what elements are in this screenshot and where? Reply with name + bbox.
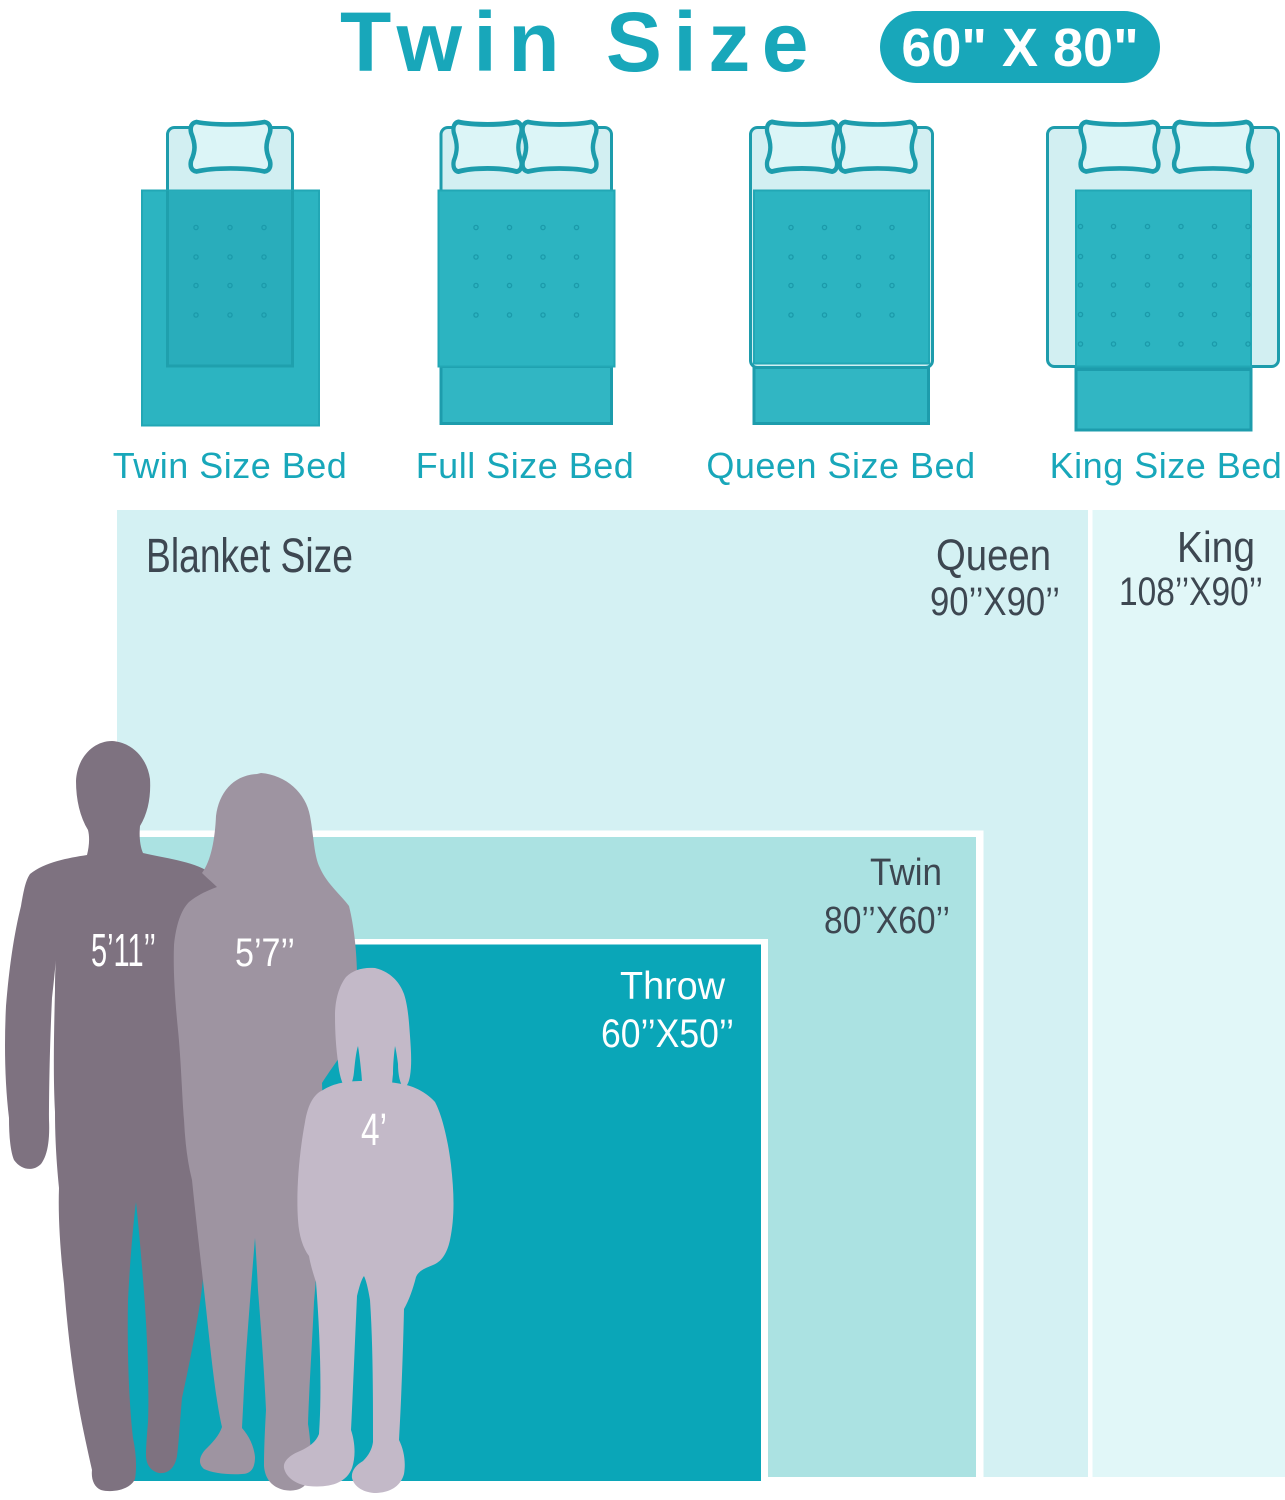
svg-text:90’’X90’’: 90’’X90’’ — [930, 580, 1060, 624]
svg-text:Throw: Throw — [620, 965, 726, 1008]
svg-text:5’11’’: 5’11’’ — [91, 924, 156, 976]
svg-text:King Size Bed: King Size Bed — [1050, 445, 1283, 486]
svg-text:Twin: Twin — [870, 852, 942, 894]
svg-text:5’7’’: 5’7’’ — [235, 931, 295, 975]
svg-text:108’’X90’’: 108’’X90’’ — [1119, 570, 1263, 614]
svg-text:4’: 4’ — [361, 1104, 387, 1155]
svg-text:Queen Size Bed: Queen Size Bed — [706, 445, 975, 486]
svg-text:Blanket Size: Blanket Size — [146, 530, 353, 583]
svg-text:80’’X60’’: 80’’X60’’ — [824, 900, 950, 942]
svg-text:Twin Size: Twin Size — [340, 0, 820, 89]
svg-text:King: King — [1177, 523, 1255, 572]
svg-text:60" X 80": 60" X 80" — [901, 18, 1138, 78]
svg-text:Twin Size Bed: Twin Size Bed — [113, 445, 348, 486]
svg-text:60’’X50’’: 60’’X50’’ — [601, 1012, 734, 1056]
svg-text:Full Size Bed: Full Size Bed — [416, 445, 635, 486]
svg-text:Queen: Queen — [936, 531, 1051, 580]
